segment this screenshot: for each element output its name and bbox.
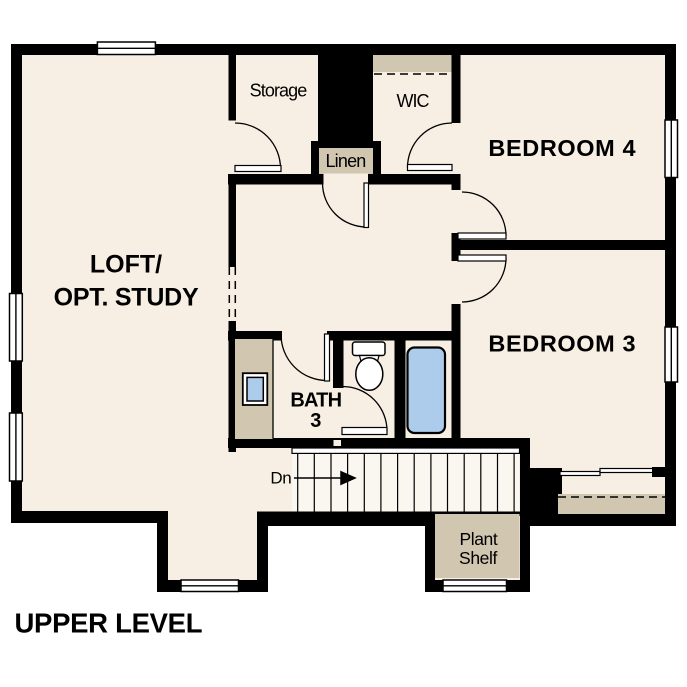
- svg-text:Plant: Plant: [459, 529, 497, 549]
- svg-text:3: 3: [310, 410, 321, 432]
- svg-text:BATH: BATH: [290, 390, 341, 412]
- svg-text:Linen: Linen: [325, 151, 365, 171]
- svg-text:UPPER LEVEL: UPPER LEVEL: [15, 608, 203, 639]
- svg-text:BEDROOM 3: BEDROOM 3: [488, 331, 636, 357]
- svg-text:BEDROOM 4: BEDROOM 4: [488, 135, 636, 161]
- svg-text:LOFT/: LOFT/: [90, 251, 162, 279]
- svg-text:Dn: Dn: [270, 469, 291, 488]
- svg-text:Shelf: Shelf: [459, 548, 497, 568]
- svg-text:OPT. STUDY: OPT. STUDY: [54, 284, 199, 312]
- svg-text:WIC: WIC: [397, 91, 430, 111]
- svg-text:Storage: Storage: [250, 81, 308, 101]
